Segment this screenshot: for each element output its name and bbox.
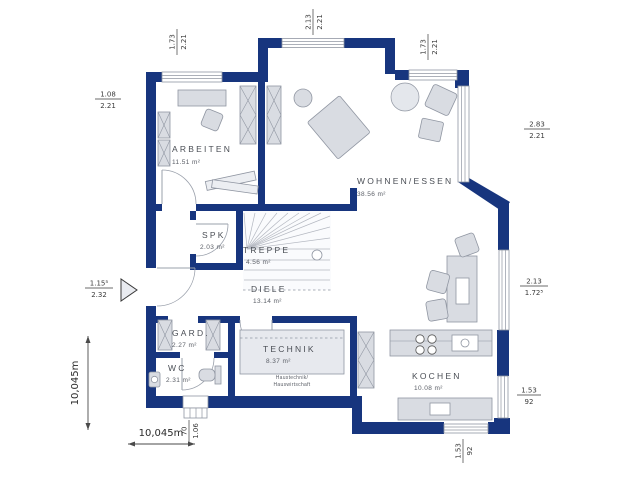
window-bay-right (458, 86, 469, 182)
cabinet (267, 86, 281, 144)
spk-door (196, 224, 228, 256)
dim-top-right: 1.73 2.21 (420, 34, 440, 60)
svg-text:2.21: 2.21 (316, 14, 324, 30)
svg-text:1.15⁵: 1.15⁵ (90, 280, 109, 288)
dining-chair (426, 270, 450, 294)
window-top-right (409, 70, 457, 80)
dim-top-center: 2.13 2.21 (305, 9, 325, 35)
dining-chair (425, 298, 448, 321)
wc-sink-basin-icon (151, 376, 157, 382)
room-area-technik: 8.37 m² (266, 358, 291, 365)
desk (178, 90, 226, 106)
svg-text:92: 92 (466, 447, 474, 456)
svg-text:2.83: 2.83 (529, 121, 545, 129)
side-table (294, 89, 312, 107)
armchair (424, 84, 458, 117)
svg-text:1.72⁵: 1.72⁵ (525, 289, 544, 297)
room-label-kochen: KOCHEN (412, 371, 462, 381)
window-right-middle (499, 250, 509, 330)
stove-burner-icon (428, 335, 436, 343)
island-sink (430, 403, 450, 415)
window-top-center (282, 39, 344, 48)
svg-text:1.08: 1.08 (100, 91, 116, 99)
kitchen-tall-unit (358, 332, 374, 388)
dim-bottom-door: 70 1.06 (181, 420, 201, 442)
room-label-diele: DIELE (251, 284, 287, 294)
svg-text:2.32: 2.32 (91, 291, 107, 299)
arbeiten-door (162, 170, 196, 204)
rug (391, 83, 419, 111)
svg-text:1.73: 1.73 (420, 39, 428, 55)
svg-text:1.53: 1.53 (455, 443, 463, 459)
room-area-treppe: 4.56 m² (246, 259, 271, 266)
stair-marker-icon (312, 250, 322, 260)
svg-text:2.21: 2.21 (529, 132, 545, 140)
svg-text:2.21: 2.21 (100, 102, 116, 110)
dim-top-left: 1.73 2.21 (169, 29, 189, 55)
room-area-spk: 2.03 m² (200, 244, 225, 251)
dim-left-upper: 1.08 2.21 (95, 91, 121, 111)
dim-right-upper: 2.83 2.21 (524, 121, 550, 141)
room-label-treppe: TREPPE (243, 245, 290, 255)
table-runner (456, 278, 469, 304)
room-label-spk: SPK (202, 230, 226, 240)
cabinet (240, 86, 256, 144)
window-top-left (162, 72, 222, 82)
entrance-marker-icon (121, 279, 137, 301)
room-label-arbeiten: ARBEITEN (172, 144, 232, 154)
dim-total-height: 10,045m (70, 336, 91, 430)
sofa (307, 95, 370, 159)
room-area-wohnen-essen: 38.56 m² (357, 191, 386, 198)
svg-text:1.73: 1.73 (169, 34, 177, 50)
room-area-kochen: 10.08 m² (414, 385, 443, 392)
desk-chair (200, 108, 223, 131)
technik-note-2: Hauswirtschaft (274, 382, 311, 388)
dim-right-middle: 2.13 1.72⁵ (520, 278, 548, 298)
toilet-tank (215, 366, 221, 384)
svg-text:92: 92 (525, 398, 534, 406)
floorplan-svg: ARBEITEN 11.51 m² WOHNEN/ESSEN 38.56 m² … (0, 0, 640, 480)
room-label-wc: WC (168, 363, 187, 373)
stove-burner-icon (416, 335, 424, 343)
window-right-lower (498, 376, 508, 418)
window-bottom-kitchen (444, 424, 488, 433)
room-label-technik: TECHNIK (263, 344, 316, 354)
svg-text:2.13: 2.13 (526, 278, 542, 286)
technik-note-1: Haustechnik/ (276, 375, 309, 381)
room-label-gard: GARD. (172, 328, 210, 338)
ottoman (418, 118, 444, 142)
floorplan-page: ARBEITEN 11.51 m² WOHNEN/ESSEN 38.56 m² … (0, 0, 640, 480)
furniture-arbeiten (158, 86, 258, 194)
stove-burner-icon (428, 346, 436, 354)
room-area-wc: 2.31 m² (166, 377, 191, 384)
room-label-wohnen-essen: WOHNEN/ESSEN (357, 176, 453, 186)
svg-text:10,045m: 10,045m (70, 361, 81, 406)
svg-text:2.21: 2.21 (180, 34, 188, 50)
toilet (199, 369, 215, 381)
stove-burner-icon (416, 346, 424, 354)
svg-text:2.21: 2.21 (431, 39, 439, 55)
room-area-diele: 13.14 m² (253, 298, 282, 305)
svg-text:1.53: 1.53 (521, 387, 537, 395)
dim-right-lower: 1.53 92 (517, 387, 541, 407)
sink-drain-icon (461, 339, 469, 347)
dim-bottom-right: 1.53 92 (455, 439, 475, 463)
door-bottom-left (183, 396, 208, 418)
entrance-door (157, 268, 195, 306)
dining-chair (454, 232, 480, 258)
dim-entrance: 1.15⁵ 2.32 (85, 280, 113, 300)
room-area-arbeiten: 11.51 m² (172, 159, 201, 166)
svg-text:10,045m: 10,045m (139, 428, 184, 439)
svg-text:1.06: 1.06 (192, 423, 200, 439)
room-area-gard: 2.27 m² (172, 342, 197, 349)
svg-text:2.13: 2.13 (305, 14, 313, 30)
